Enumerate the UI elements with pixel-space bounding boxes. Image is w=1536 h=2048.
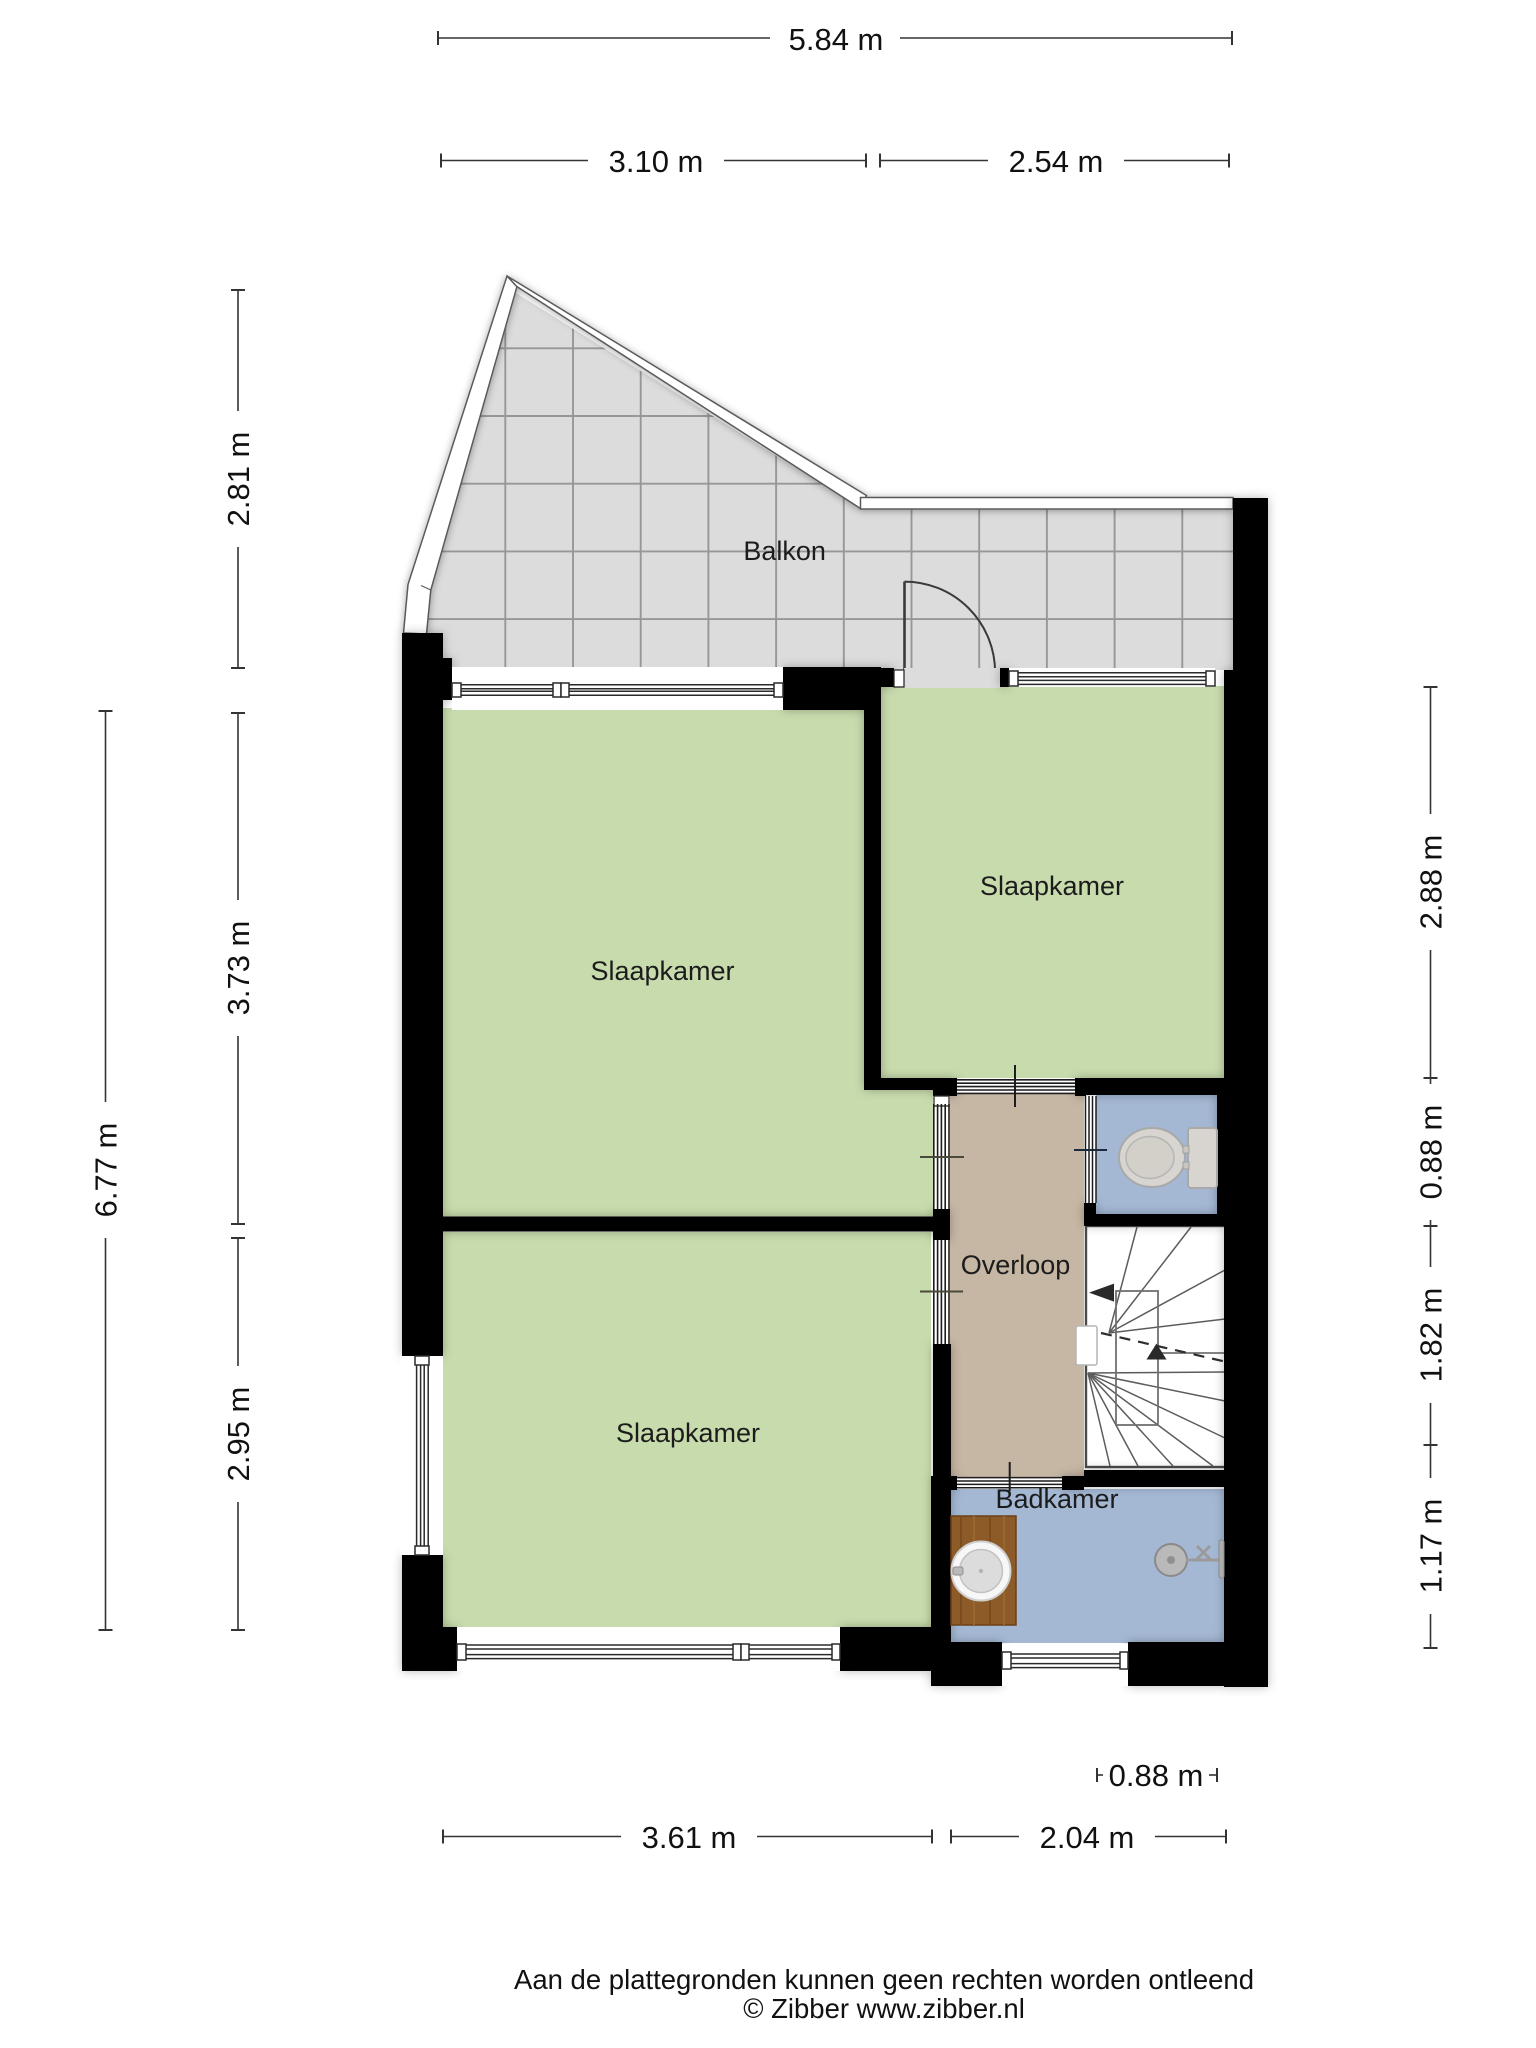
svg-text:1.82 m: 1.82 m [1414,1288,1449,1383]
svg-text:Slaapkamer: Slaapkamer [980,871,1124,901]
svg-text:3.73 m: 3.73 m [221,921,256,1016]
svg-text:6.77 m: 6.77 m [89,1123,124,1218]
svg-text:2.54 m: 2.54 m [1009,144,1104,179]
svg-text:3.61 m: 3.61 m [642,1820,737,1855]
svg-text:2.95 m: 2.95 m [221,1387,256,1482]
svg-text:Slaapkamer: Slaapkamer [616,1418,760,1448]
svg-text:5.84 m: 5.84 m [789,22,884,57]
svg-text:Balkon: Balkon [743,536,826,566]
svg-text:3.10 m: 3.10 m [609,144,704,179]
svg-text:Aan de plattegronden kunnen ge: Aan de plattegronden kunnen geen rechten… [514,1964,1254,1995]
svg-text:0.88 m: 0.88 m [1414,1105,1449,1200]
svg-text:Slaapkamer: Slaapkamer [590,956,734,986]
svg-text:© Zibber www.zibber.nl: © Zibber www.zibber.nl [743,1993,1025,2024]
svg-text:2.81 m: 2.81 m [221,432,256,527]
svg-text:1.17 m: 1.17 m [1414,1499,1449,1594]
svg-text:2.04 m: 2.04 m [1040,1820,1135,1855]
svg-text:0.88 m: 0.88 m [1109,1758,1204,1793]
svg-text:Badkamer: Badkamer [995,1484,1118,1514]
svg-text:2.88 m: 2.88 m [1414,835,1449,930]
svg-text:Overloop: Overloop [961,1250,1071,1280]
